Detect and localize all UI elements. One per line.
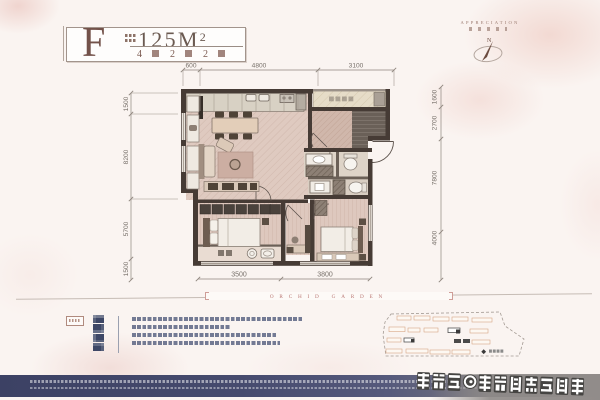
svg-text:2700: 2700 [432,115,439,130]
svg-text:5700: 5700 [123,221,130,236]
svg-text:1500: 1500 [123,96,130,111]
svg-text:1600: 1600 [432,89,439,104]
svg-text:ORCHID GARDEN: ORCHID GARDEN [270,294,388,300]
svg-text:3800: 3800 [317,272,333,279]
svg-text:8200: 8200 [123,149,130,164]
svg-text:7800: 7800 [432,170,439,185]
svg-text:1500: 1500 [123,261,130,276]
svg-text:600: 600 [185,63,196,70]
svg-text:4800: 4800 [252,63,267,70]
svg-text:4000: 4000 [432,230,439,245]
svg-text:3100: 3100 [349,63,364,70]
svg-text:3500: 3500 [231,272,247,279]
